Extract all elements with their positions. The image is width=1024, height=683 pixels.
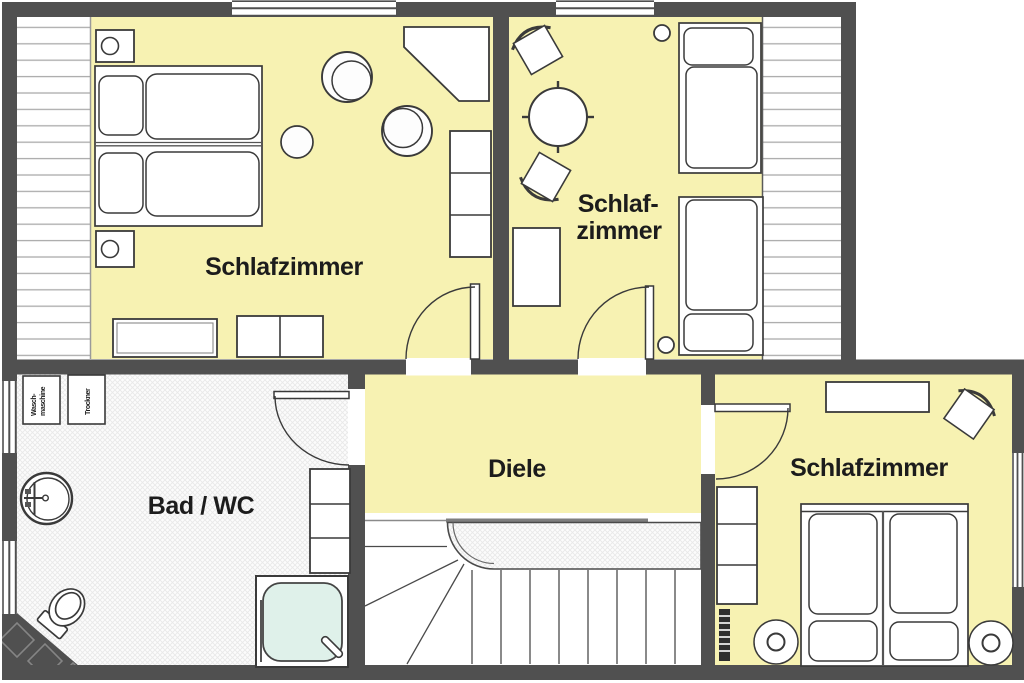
svg-text:Schlafzimmer: Schlafzimmer [790, 454, 948, 482]
svg-text:Schlafzimmer: Schlafzimmer [205, 253, 363, 281]
svg-text:Trockner: Trockner [85, 388, 92, 415]
svg-text:zimmer: zimmer [576, 217, 662, 245]
svg-text:maschine: maschine [40, 386, 47, 416]
svg-text:Schlaf-: Schlaf- [578, 190, 659, 218]
svg-text:Wasch-: Wasch- [31, 393, 38, 416]
svg-text:Diele: Diele [488, 455, 546, 483]
svg-text:Bad / WC: Bad / WC [148, 492, 255, 520]
